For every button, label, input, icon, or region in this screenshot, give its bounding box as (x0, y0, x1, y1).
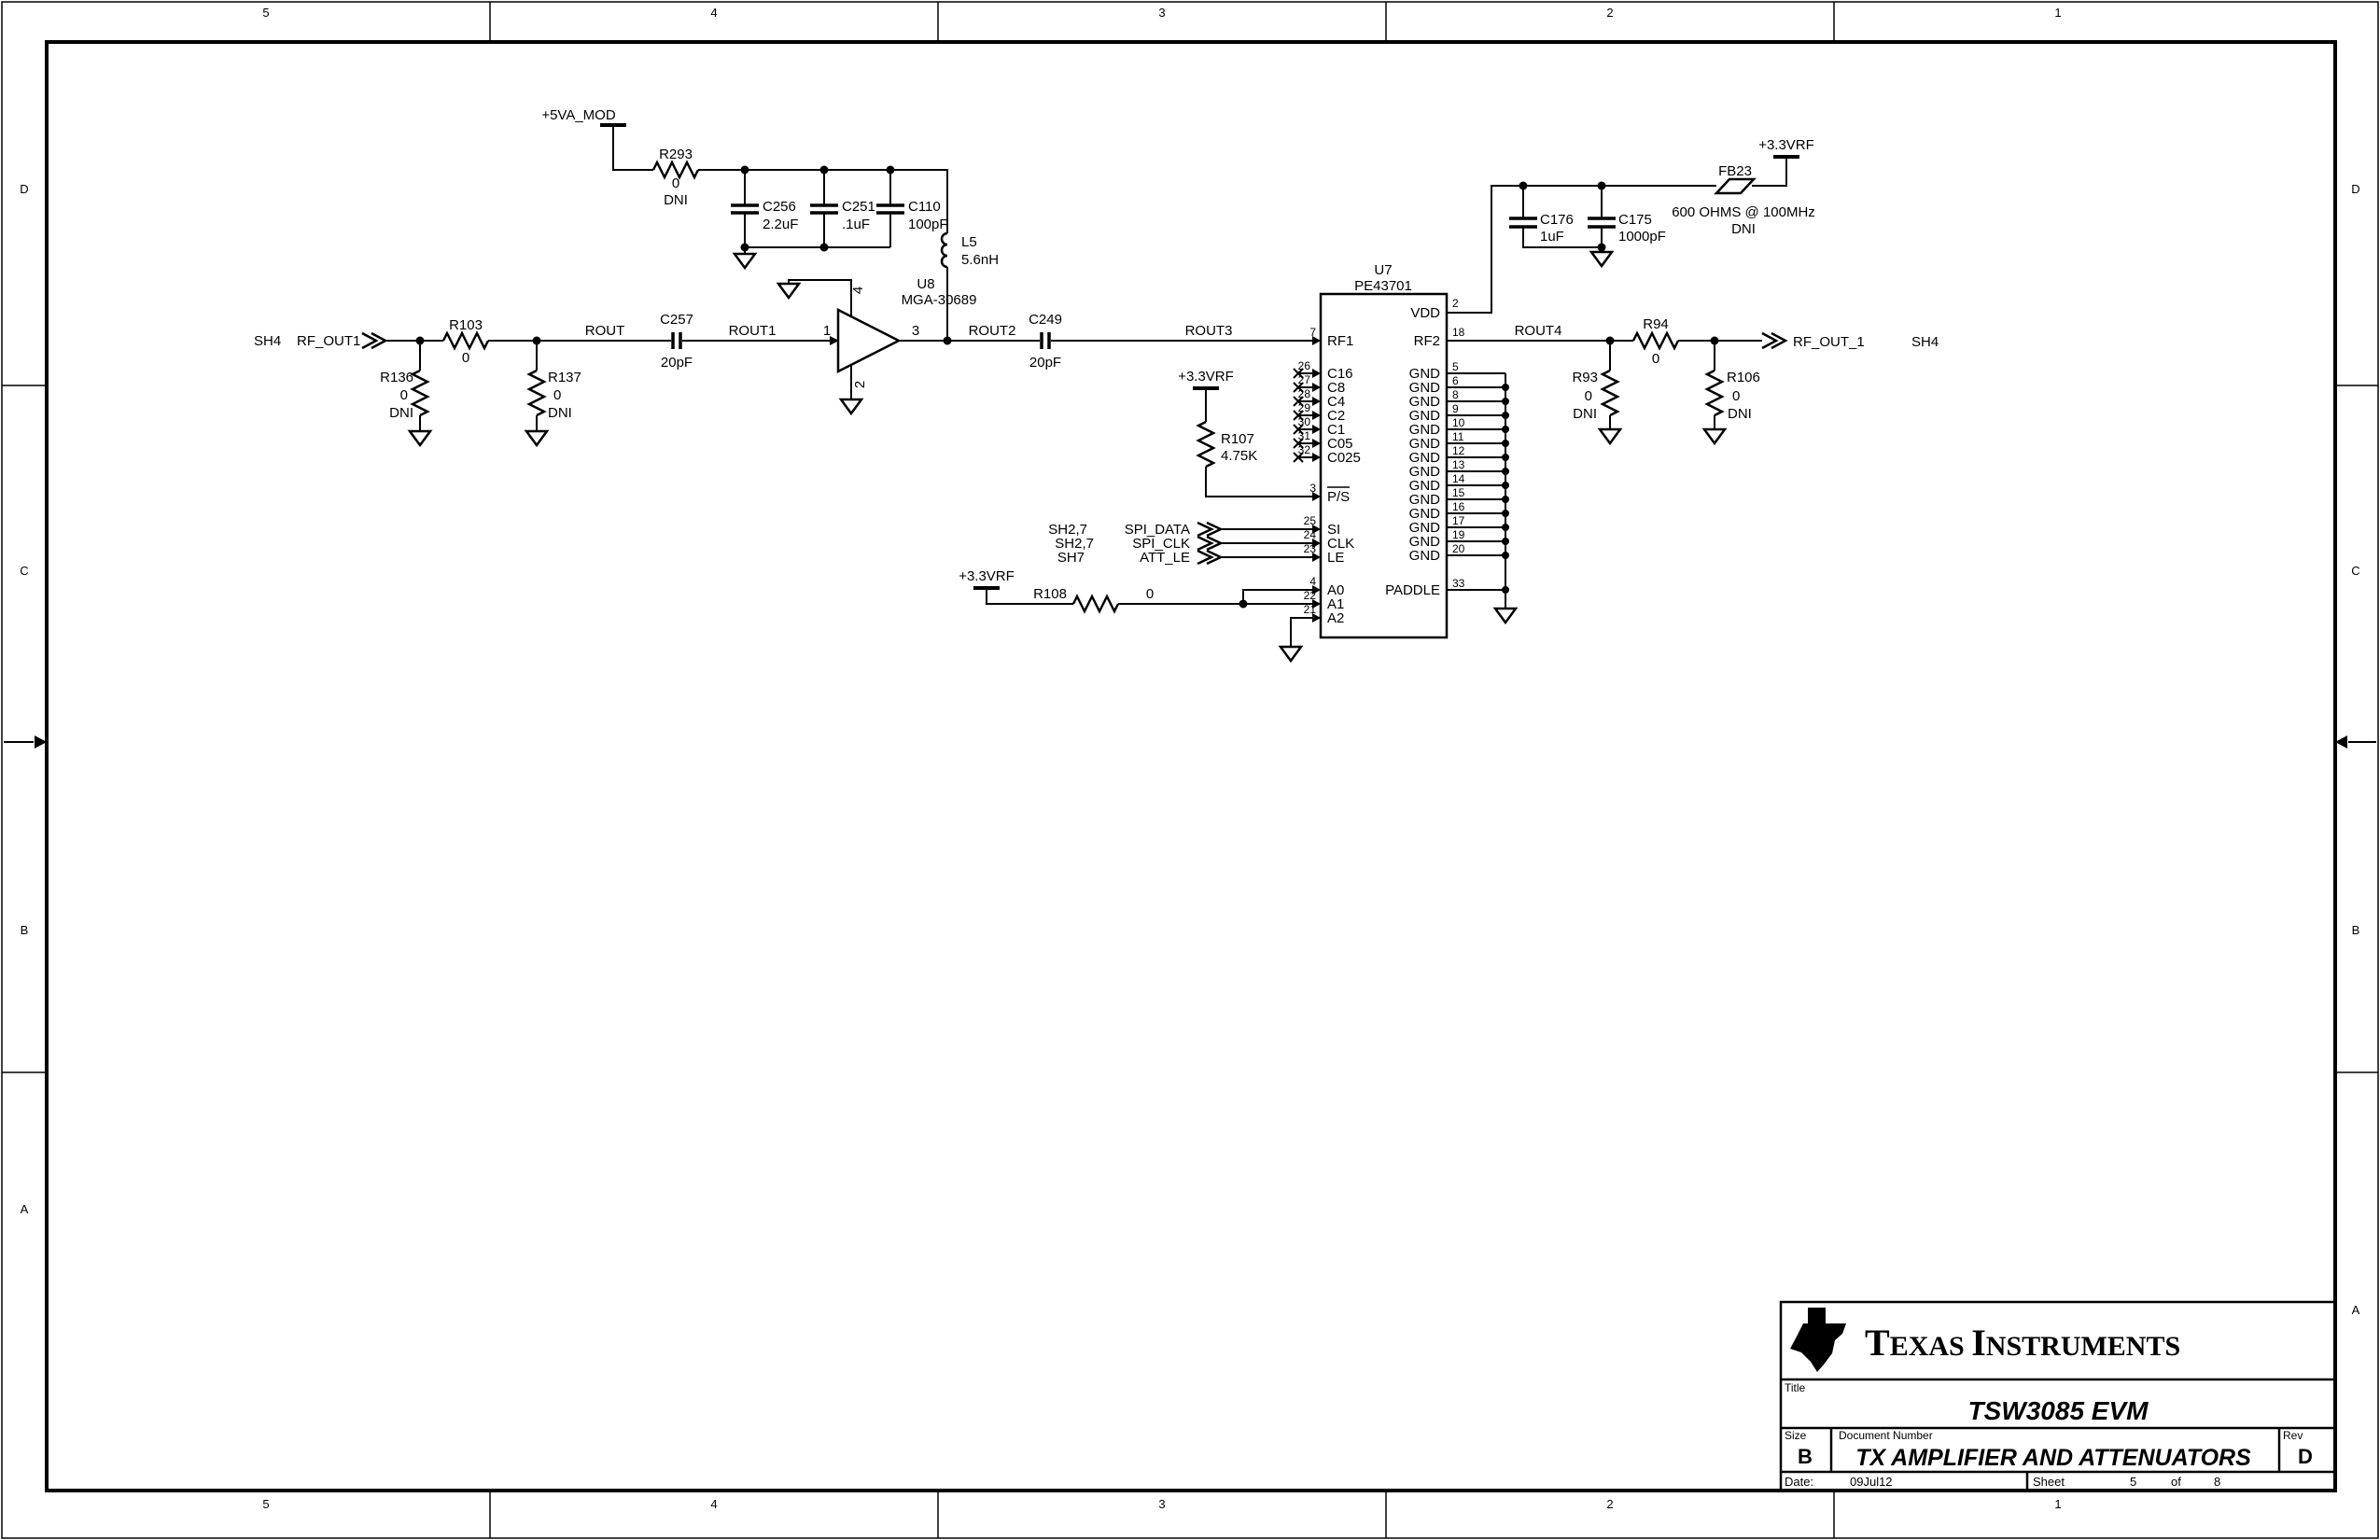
fb23-ref: FB23 (1718, 163, 1752, 179)
capacitor-symbol (810, 205, 838, 213)
sheet-title: TSW3085 EVM (1968, 1396, 2149, 1425)
u7-pin-number: 28 (1298, 387, 1311, 400)
wire-input-shunts (420, 341, 537, 431)
net-label-rout4: ROUT4 (1515, 323, 1562, 339)
sheet-total: 8 (2214, 1475, 2220, 1489)
junction-dot (1502, 426, 1509, 433)
ti-logo-ti-text: ti (1808, 1321, 1828, 1356)
u7-pin-number: 22 (1304, 589, 1317, 602)
component-r137: R137 0 DNI (529, 370, 581, 421)
rev-label: Rev (2283, 1429, 2303, 1442)
junction-dot (1502, 538, 1509, 545)
inner-border (47, 42, 2335, 1491)
junction-dot (1502, 524, 1509, 531)
u7-part: PE43701 (1354, 278, 1412, 294)
ground-icon (1591, 252, 1612, 266)
zone-label: 2 (1606, 6, 1613, 20)
r293-ref: R293 (659, 147, 693, 162)
u7-pin-number: 27 (1298, 373, 1311, 386)
r103-value: 0 (462, 350, 469, 366)
u7-pin-number: 31 (1298, 429, 1311, 442)
component-c256: C256 2.2uF (731, 199, 798, 232)
title-block: ti TEXAS INSTRUMENTS Title TSW3085 EVM S… (1781, 1302, 2335, 1491)
c251-value: .1uF (842, 217, 870, 232)
junction-dot (820, 244, 829, 252)
zone-ticks-right (2335, 385, 2378, 1072)
ground-symbols (410, 252, 1725, 661)
resistor-symbol (1073, 596, 1118, 611)
r293-value: 0 (672, 175, 679, 191)
c249-ref: C249 (1029, 312, 1062, 328)
pin-arrow-icon (1312, 411, 1321, 420)
resistor-symbol (1707, 371, 1722, 415)
amplifier-symbol (838, 310, 899, 371)
u8-pin-out-number: 3 (912, 323, 919, 339)
date-value: 09Jul12 (1850, 1475, 1893, 1489)
junction-dot (1598, 244, 1606, 252)
u7-pin-number: 19 (1452, 528, 1465, 541)
r137-ref: R137 (548, 370, 581, 385)
rev-value: D (2298, 1445, 2313, 1468)
junction-dot (1711, 337, 1719, 345)
component-r106: R106 0 DNI (1707, 370, 1760, 422)
size-label: Size (1785, 1429, 1807, 1442)
r137-note: DNI (548, 405, 572, 421)
capacitor-symbol (673, 332, 680, 349)
r94-ref: R94 (1643, 316, 1669, 332)
ground-icon (735, 254, 755, 268)
junction-dot (1502, 468, 1509, 475)
u7-pin-number: 14 (1452, 472, 1465, 485)
resistor-symbol (413, 371, 427, 415)
sheet-number: 5 (2130, 1475, 2136, 1489)
junction-dot (1502, 398, 1509, 405)
u7-pin-number: 5 (1452, 360, 1459, 373)
u7-pin-number: 16 (1452, 500, 1465, 513)
zone-label: D (2351, 182, 2359, 196)
u7-pin-name: C025 (1327, 450, 1361, 466)
c251-ref: C251 (842, 199, 875, 215)
component-c176: C176 1uF (1509, 212, 1574, 245)
zone-label: C (20, 564, 28, 578)
output-connector: RF_OUT_1 SH4 (1762, 333, 1939, 350)
zone-label: 4 (710, 1497, 717, 1511)
ti-logo: ti (1790, 1308, 1846, 1372)
r293-note: DNI (664, 192, 688, 208)
c176-ref: C176 (1540, 212, 1574, 228)
ground-icon (778, 284, 799, 298)
junction-dot (416, 337, 425, 345)
u7-pin-number: 23 (1304, 542, 1317, 555)
input-net-name: RF_OUT1 (297, 333, 360, 349)
r108-value: 0 (1146, 586, 1154, 602)
doc-number-value: TX AMPLIFIER AND ATTENUATORS (1855, 1445, 2251, 1471)
date-label: Date: (1785, 1475, 1813, 1489)
power-flag-5va: +5VA_MOD (541, 107, 626, 125)
component-r107: +3.3VRF R107 4.75K (1178, 369, 1257, 467)
power-label-5va: +5VA_MOD (541, 107, 616, 123)
wire-spi (1221, 529, 1314, 557)
offpage-chevron-icon (362, 333, 385, 348)
junction-dot (741, 244, 749, 252)
u7-pin-number: 2 (1452, 297, 1459, 310)
u7-pin-number: 32 (1298, 443, 1311, 456)
u7-pin-number: 8 (1452, 388, 1459, 401)
u7-pin-number: 24 (1304, 528, 1317, 541)
doc-number-label: Document Number (1839, 1429, 1933, 1442)
sheet-label: Sheet (2033, 1475, 2065, 1489)
c249-value: 20pF (1029, 355, 1061, 371)
u7-pin-number: 15 (1452, 486, 1465, 499)
junction-dot (1502, 552, 1509, 559)
u7-pin-name: P/S (1327, 489, 1350, 505)
u7-pin-number: 4 (1309, 575, 1316, 588)
component-r293: R293 0 DNI (653, 147, 698, 208)
component-r136: R136 0 DNI (380, 370, 427, 421)
pin-arrow-icon (1312, 369, 1321, 378)
ground-icon (1495, 609, 1516, 623)
spi-connectors: SH2,7 SPI_DATA SPI_CLK SH2,7 ATT_LE SH7 (1048, 522, 1221, 566)
junction-dot (1502, 510, 1509, 517)
att-le-sheet-ref: SH7 (1057, 550, 1085, 566)
power-label-33vrf-fb: +3.3VRF (1758, 137, 1814, 153)
u8-pin-top-number: 4 (850, 287, 866, 294)
r108-ref: R108 (1033, 586, 1067, 602)
component-r108: +3.3VRF R108 0 (959, 568, 1154, 611)
zone-label: 4 (710, 6, 717, 20)
c176-value: 1uF (1540, 229, 1564, 245)
c256-ref: C256 (763, 199, 796, 215)
ground-icon (1600, 429, 1620, 443)
junction-dot (820, 166, 829, 175)
component-c110: C110 100pF (876, 199, 948, 232)
u7-pin-number: 12 (1452, 444, 1465, 457)
capacitor-symbol (1509, 218, 1537, 227)
u7-pin-name: VDD (1410, 305, 1440, 321)
capacitor-symbol (1588, 218, 1616, 227)
input-connector: SH4 RF_OUT1 (254, 333, 385, 349)
zone-label: 1 (2054, 6, 2061, 20)
junction-dot (1239, 600, 1248, 609)
c257-value: 20pF (661, 355, 693, 371)
u7-pin-number: 21 (1304, 603, 1317, 616)
u7-pin-number: 10 (1452, 416, 1465, 429)
r93-value: 0 (1585, 388, 1592, 404)
l5-ref: L5 (961, 234, 977, 250)
u7-pin-number: 17 (1452, 514, 1465, 527)
output-sheet-ref: SH4 (1911, 334, 1939, 350)
r136-note: DNI (389, 405, 413, 421)
junction-dot (887, 166, 895, 175)
resistor-symbol (443, 333, 488, 348)
brand-name: TEXAS INSTRUMENTS (1865, 1322, 2180, 1364)
schematic-sheet: 5 4 3 2 1 5 4 3 2 1 D C B A D C B A (0, 0, 2380, 1540)
resistor-symbol (1603, 371, 1617, 415)
u7-pin-number: 25 (1304, 514, 1317, 527)
u7-pin-number: 30 (1298, 415, 1311, 428)
r106-ref: R106 (1727, 370, 1760, 385)
junction-dot (741, 166, 749, 175)
pin-arrow-icon (1312, 425, 1321, 434)
sheet-of-label: of (2171, 1475, 2181, 1489)
c256-value: 2.2uF (763, 217, 798, 232)
junction-dot (1502, 384, 1509, 391)
junction-dot (1598, 182, 1606, 190)
u7-pin-number: 3 (1309, 482, 1316, 495)
net-label-rout: ROUT (585, 323, 625, 339)
net-label-rout2: ROUT2 (969, 323, 1016, 339)
u7-pin-number: 29 (1298, 401, 1311, 414)
offpage-chevron-icon (1197, 523, 1221, 536)
u8-ref: U8 (917, 276, 934, 292)
power-flag-33vrf-fb: +3.3VRF (1758, 137, 1814, 157)
sheet-frame: 5 4 3 2 1 5 4 3 2 1 D C B A D C B A (2, 2, 2378, 1538)
power-label-33vrf-addr: +3.3VRF (959, 568, 1015, 584)
ground-icon (1704, 429, 1725, 443)
r93-note: DNI (1573, 406, 1597, 422)
zone-label: A (21, 1202, 29, 1216)
u7-pin-name: RF1 (1327, 333, 1353, 349)
l5-value: 5.6nH (961, 252, 999, 268)
pin-arrow-icon (1312, 453, 1321, 462)
component-c251: C251 .1uF (810, 199, 875, 232)
zone-label: 2 (1606, 1497, 1613, 1511)
component-l5: L5 5.6nH (942, 233, 999, 268)
fb23-note: DNI (1731, 221, 1756, 237)
component-r94: R94 0 (1633, 316, 1678, 367)
offpage-chevron-icon (1197, 551, 1221, 564)
zone-ticks-left (2, 385, 47, 1072)
capacitor-symbol (876, 205, 904, 213)
zone-label: 1 (2054, 1497, 2061, 1511)
c175-value: 1000pF (1618, 229, 1666, 245)
fb23-value: 600 OHMS @ 100MHz (1672, 204, 1815, 220)
resistor-symbol (529, 371, 544, 415)
u7-pin-name: PADDLE (1385, 582, 1440, 598)
inductor-symbol (942, 233, 947, 267)
junction-dot (533, 337, 541, 345)
pin-arrow-icon (1312, 439, 1321, 448)
wires (385, 125, 1786, 647)
u7-pin-name: GND (1409, 548, 1441, 564)
ground-icon (841, 399, 861, 413)
junction-dot (1502, 412, 1509, 419)
c110-ref: C110 (908, 199, 941, 215)
size-value: B (1798, 1445, 1813, 1468)
u7-pin-number: 7 (1309, 326, 1316, 339)
offpage-chevron-icon (1197, 537, 1221, 550)
zone-label: B (2352, 923, 2360, 937)
junction-dot (1502, 586, 1509, 594)
input-sheet-ref: SH4 (254, 333, 281, 349)
r137-value: 0 (553, 387, 561, 403)
component-u7-attenuator: U7 PE43701 (1294, 262, 1465, 637)
r107-ref: R107 (1221, 431, 1254, 447)
c110-value: 100pF (908, 217, 948, 232)
att-le-net-name: ATT_LE (1140, 550, 1190, 566)
ferrite-bead-symbol (1716, 179, 1754, 193)
u7-ref: U7 (1374, 262, 1392, 278)
power-label-33vrf-ps: +3.3VRF (1178, 369, 1234, 385)
net-label-rout3: ROUT3 (1185, 323, 1233, 339)
r136-value: 0 (400, 387, 408, 403)
u7-pin-number: 11 (1452, 430, 1464, 443)
net-label-rout1: ROUT1 (729, 323, 777, 339)
ground-icon (526, 431, 547, 445)
u7-pin-name: LE (1327, 550, 1344, 566)
pin-arrow-icon (1312, 397, 1321, 406)
c175-ref: C175 (1618, 212, 1652, 228)
u8-pin-bot-number: 2 (852, 381, 868, 388)
offpage-chevron-icon (1762, 333, 1785, 348)
zone-label: B (21, 923, 29, 937)
r94-value: 0 (1652, 351, 1659, 367)
junction-dot (1502, 496, 1509, 503)
u7-pin-number: 9 (1452, 402, 1459, 415)
junction-dot (1502, 482, 1509, 489)
output-net-name: RF_OUT_1 (1793, 334, 1865, 350)
resistor-symbol (1633, 333, 1678, 348)
u7-pin-number: 33 (1452, 577, 1465, 590)
u7-pin-name: A2 (1327, 610, 1344, 626)
ground-icon (410, 431, 430, 445)
u8-part: MGA-30689 (902, 292, 977, 308)
zone-label: C (2351, 564, 2359, 578)
r93-ref: R93 (1572, 370, 1598, 385)
component-r93: R93 0 DNI (1572, 370, 1617, 422)
component-u8-amplifier: 1 3 4 2 U8 MGA-30689 (823, 276, 977, 388)
zone-label: A (2352, 1303, 2360, 1317)
r103-ref: R103 (449, 317, 483, 333)
r106-value: 0 (1732, 388, 1740, 404)
pin-arrow-icon (1312, 383, 1321, 392)
junction-dot (944, 337, 952, 345)
zone-label: D (20, 182, 28, 196)
c257-ref: C257 (660, 312, 693, 328)
junction-dot (1502, 454, 1509, 461)
u7-pin-number: 13 (1452, 458, 1465, 471)
title-label: Title (1785, 1381, 1806, 1394)
u8-pin-in-number: 1 (823, 323, 831, 339)
resistor-symbol (1198, 422, 1213, 467)
component-r103: R103 0 (443, 317, 488, 366)
u7-pin-name: RF2 (1414, 333, 1440, 349)
junction-dot (1502, 440, 1509, 447)
ground-icon (1281, 647, 1301, 661)
zone-label: 3 (1158, 6, 1165, 20)
component-fb23: FB23 600 OHMS @ 100MHz DNI (1672, 163, 1815, 237)
junction-dot (1519, 182, 1528, 190)
u7-pin-number: 26 (1298, 359, 1311, 372)
u7-pin-number: 6 (1452, 374, 1459, 387)
junction-dot (1606, 337, 1615, 345)
r107-value: 4.75K (1221, 448, 1257, 464)
u7-pin-number: 20 (1452, 542, 1465, 555)
outer-border (2, 2, 2378, 1538)
zone-label: 5 (262, 1497, 269, 1511)
r136-ref: R136 (380, 370, 413, 385)
zone-label: 3 (1158, 1497, 1165, 1511)
capacitor-symbol (731, 205, 759, 213)
capacitor-symbol (1042, 332, 1049, 349)
u7-pin-number: 18 (1452, 326, 1465, 339)
component-c175: C175 1000pF (1588, 212, 1666, 245)
zone-label: 5 (262, 6, 269, 20)
r106-note: DNI (1728, 406, 1752, 422)
